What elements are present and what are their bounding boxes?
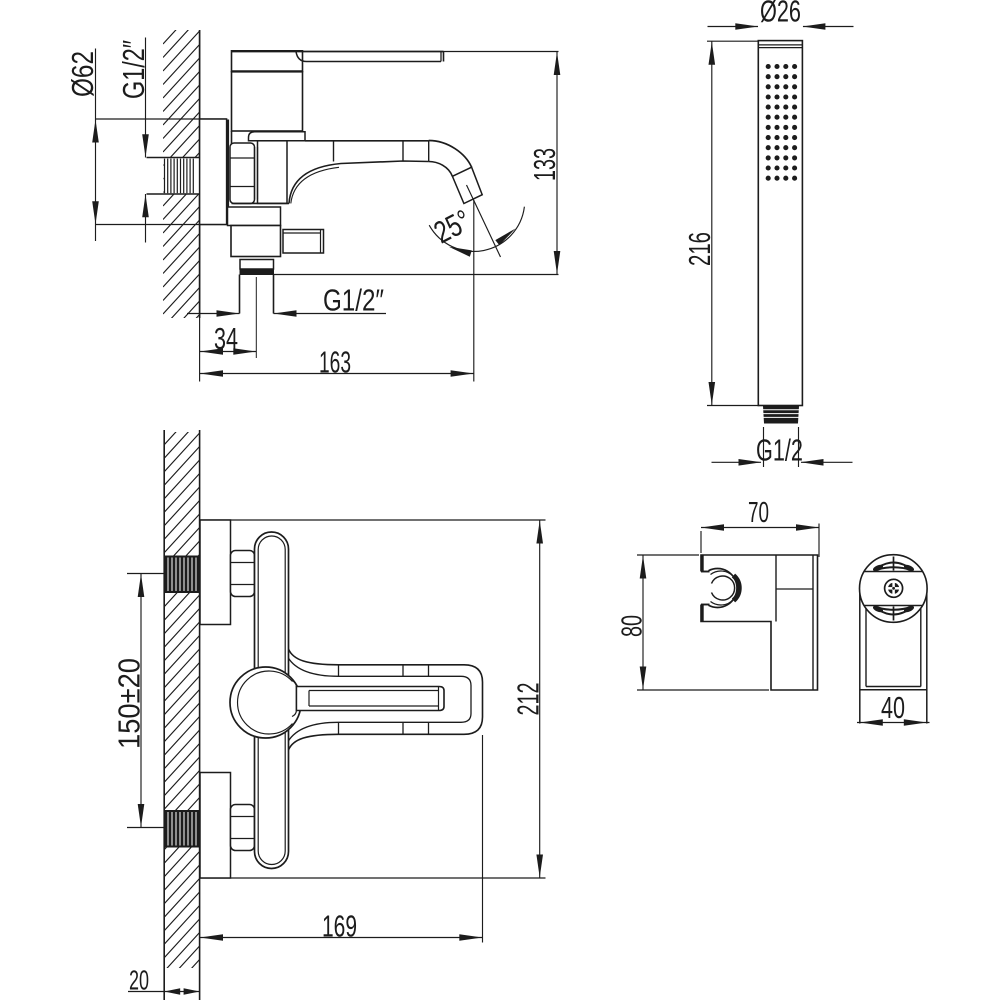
- svg-text:163: 163: [319, 345, 351, 380]
- svg-text:70: 70: [748, 497, 769, 529]
- svg-text:169: 169: [322, 909, 357, 944]
- svg-text:150±20: 150±20: [112, 658, 147, 749]
- svg-text:Ø62: Ø62: [65, 51, 100, 97]
- svg-text:133: 133: [527, 148, 562, 181]
- svg-text:20: 20: [129, 965, 149, 996]
- svg-text:212: 212: [511, 683, 546, 716]
- svg-text:216: 216: [682, 232, 717, 266]
- svg-text:80: 80: [617, 615, 649, 637]
- svg-text:G1/2″: G1/2″: [323, 283, 384, 318]
- svg-text:G1/2: G1/2: [756, 433, 803, 468]
- svg-text:34: 34: [214, 321, 238, 356]
- svg-text:G1/2″: G1/2″: [116, 40, 151, 99]
- svg-text:Ø26: Ø26: [760, 0, 801, 29]
- svg-text:40: 40: [881, 690, 905, 725]
